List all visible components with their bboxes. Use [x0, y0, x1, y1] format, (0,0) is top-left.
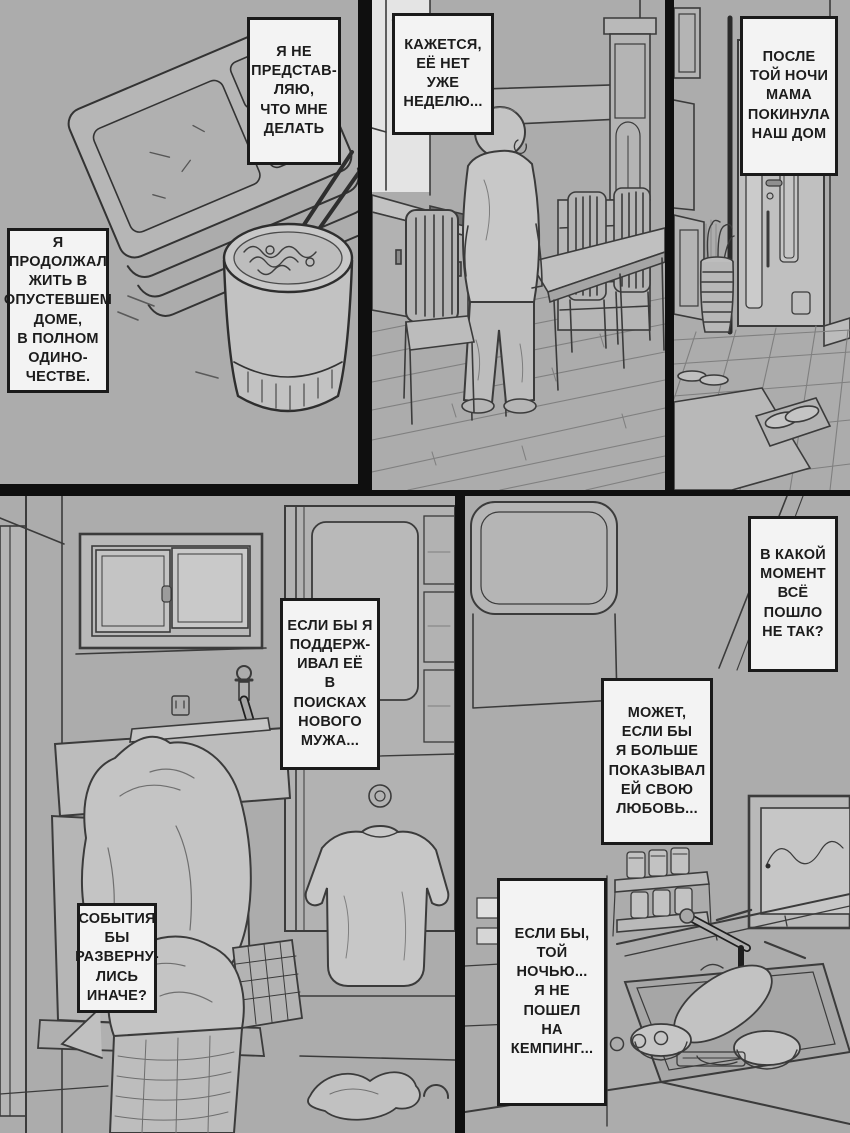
caption-gone-week: КАЖЕТСЯ, ЕЁ НЕТ УЖЕ НЕДЕЛЮ... [392, 13, 494, 135]
caption-not-camping: ЕСЛИ БЫ, ТОЙ НОЧЬЮ... Я НЕ ПОШЕЛ НА КЕМП… [497, 878, 607, 1106]
panel-laundry-room: ЕСЛИ БЫ Я ПОДДЕРЖ- ИВАЛ ЕЁ В ПОИСКАХ НОВ… [0, 496, 455, 1133]
laundry-room-drawing [0, 496, 455, 1133]
caption-text: Я НЕ ПРЕДСТАВ- ЛЯЮ, ЧТО МНЕ ДЕЛАТЬ [251, 43, 337, 139]
display-cabinet [604, 18, 656, 200]
hanging-shirt-drawing [306, 826, 449, 986]
wall-outlet [172, 696, 189, 715]
kitchen-window [749, 796, 850, 928]
fly [766, 864, 771, 869]
caption-cant-imagine: Я НЕ ПРЕДСТАВ- ЛЯЮ, ЧТО МНЕ ДЕЛАТЬ [247, 17, 341, 165]
caption-what-moment: В КАКОЙ МОМЕНТ ВСЁ ПОШЛО НЕ ТАК? [748, 516, 838, 672]
caption-text: ЕСЛИ БЫ, ТОЙ НОЧЬЮ... Я НЕ ПОШЕЛ НА КЕМП… [504, 925, 600, 1059]
caption-turned-out: СОБЫТИЯ БЫ РАЗВЕРНУ- ЛИСЬ ИНАЧЕ? [77, 903, 157, 1013]
caption-text: Я ПРОДОЛЖАЛ ЖИТЬ В ОПУСТЕВШЕМ ДОМЕ, В ПО… [4, 234, 112, 387]
caption-text: КАЖЕТСЯ, ЕЁ НЕТ УЖЕ НЕДЕЛЮ... [403, 36, 482, 113]
sink-with-dishes [625, 950, 850, 1082]
floor-towel [308, 1072, 420, 1119]
caption-text: СОБЫТИЯ БЫ РАЗВЕРНУ- ЛИСЬ ИНАЧЕ? [75, 910, 159, 1006]
baseboard [824, 318, 850, 346]
panel-trays: Я НЕ ПРЕДСТАВ- ЛЯЮ, ЧТО МНЕ ДЕЛАТЬ Я ПРО… [0, 0, 358, 484]
panel-dining-room: КАЖЕТСЯ, ЕЁ НЕТ УЖЕ НЕДЕЛЮ... [372, 0, 665, 490]
caption-lived-alone: Я ПРОДОЛЖАЛ ЖИТЬ В ОПУСТЕВШЕМ ДОМЕ, В ПО… [7, 228, 109, 393]
laundry-cabinet-right [285, 506, 455, 1098]
bowl [734, 1031, 800, 1065]
panel-entryway: ПОСЛЕ ТОЙ НОЧИ МАМА ПОКИНУЛА НАШ ДОМ [674, 0, 850, 490]
caption-text: ПОСЛЕ ТОЙ НОЧИ МАМА ПОКИНУЛА НАШ ДОМ [748, 48, 830, 144]
caption-text: В КАКОЙ МОМЕНТ ВСЁ ПОШЛО НЕ ТАК? [760, 546, 826, 642]
caption-text: МОЖЕТ, ЕСЛИ БЫ Я БОЛЬШЕ ПОКАЗЫВАЛ ЕЙ СВО… [609, 704, 706, 819]
caption-shown-love: МОЖЕТ, ЕСЛИ БЫ Я БОЛЬШЕ ПОКАЗЫВАЛ ЕЙ СВО… [601, 678, 713, 845]
slippers [678, 371, 728, 385]
refrigerator-top [471, 502, 617, 708]
caption-supported-her: ЕСЛИ БЫ Я ПОДДЕРЖ- ИВАЛ ЕЁ В ПОИСКАХ НОВ… [280, 598, 380, 770]
man-standing-drawing [462, 107, 542, 413]
caption-mom-left: ПОСЛЕ ТОЙ НОЧИ МАМА ПОКИНУЛА НАШ ДОМ [740, 16, 838, 176]
motion-lines [118, 296, 218, 378]
left-cabinets [674, 8, 704, 320]
caption-text: ЕСЛИ БЫ Я ПОДДЕРЖ- ИВАЛ ЕЁ В ПОИСКАХ НОВ… [287, 617, 373, 751]
window-drawing [76, 534, 266, 654]
manga-page: Я НЕ ПРЕДСТАВ- ЛЯЮ, ЧТО МНЕ ДЕЛАТЬ Я ПРО… [0, 0, 850, 1133]
panel-kitchen-sink: В КАКОЙ МОМЕНТ ВСЁ ПОШЛО НЕ ТАК? МОЖЕТ, … [465, 496, 850, 1133]
